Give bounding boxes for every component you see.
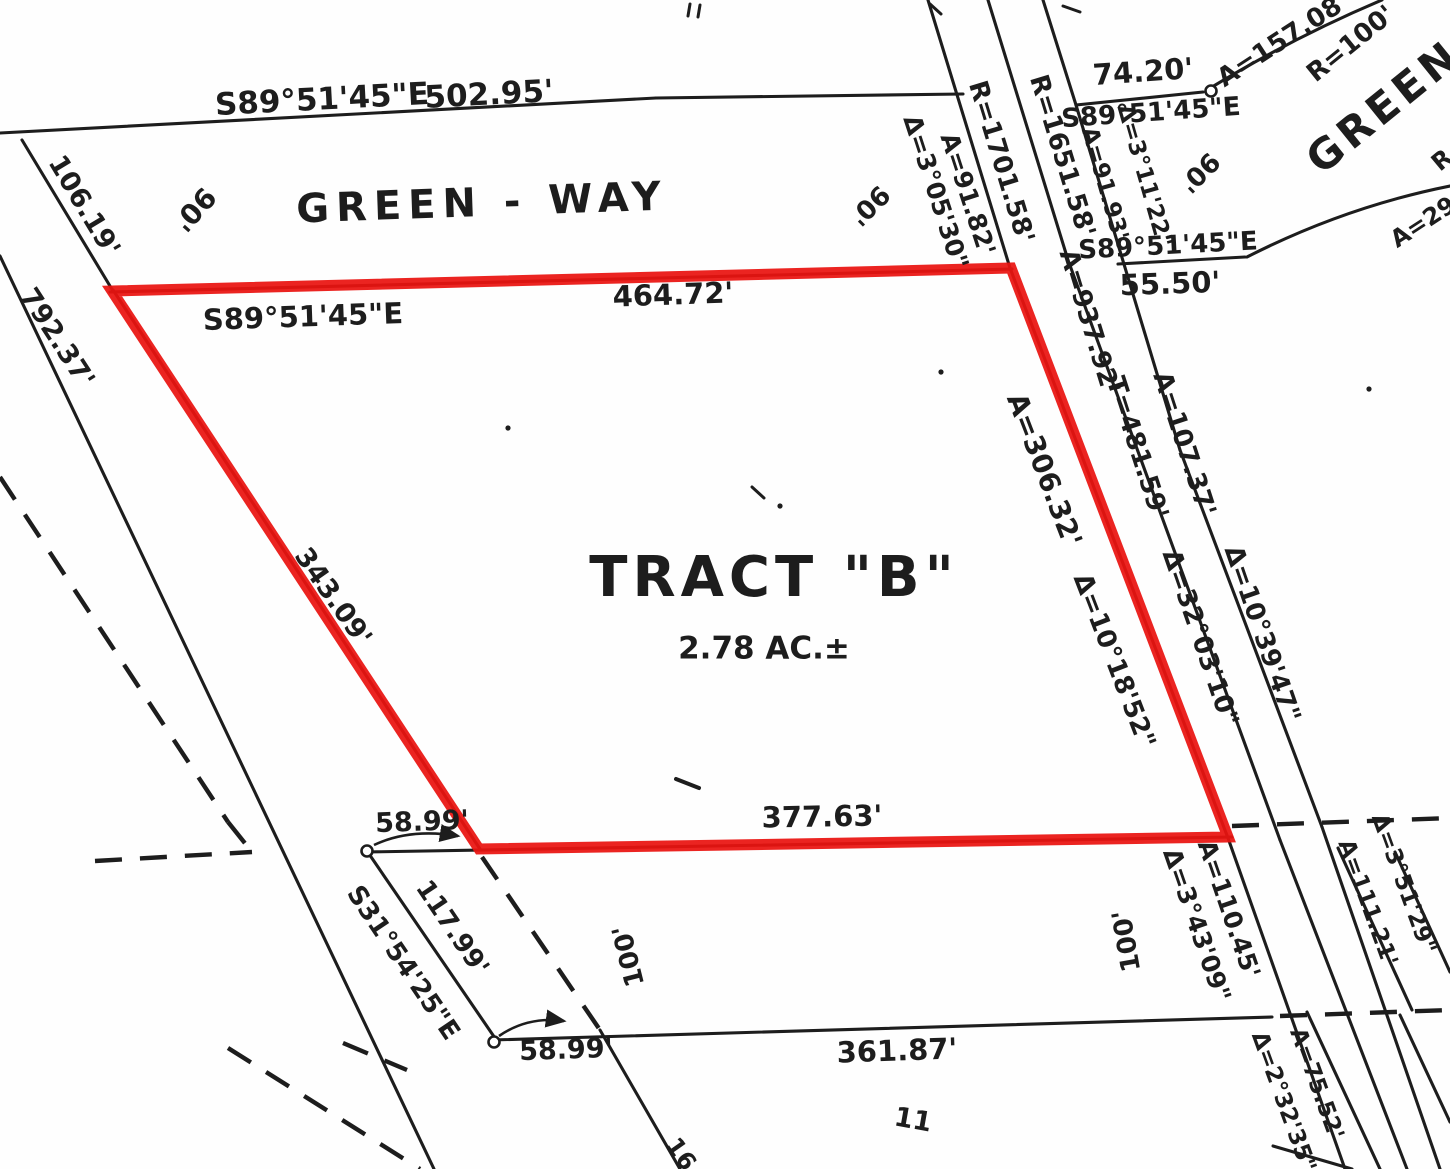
label-dist-5550: 55.50' <box>1119 268 1221 300</box>
label-dist-5899-a: 58.99' <box>375 807 470 837</box>
label-dist-361: 361.87' <box>836 1034 958 1067</box>
plat-map-scan: S89°51'45"E502.95'GREEN - WAY90'106.19'7… <box>0 0 1450 1169</box>
label-tract-area: 2.78 AC.± <box>678 634 850 665</box>
label-dist-7420: 74.20' <box>1092 54 1194 90</box>
label-dist-377: 377.63' <box>761 801 882 832</box>
label-dist-parcel-top: 464.72' <box>612 278 734 311</box>
label-tract-name: TRACT "B" <box>589 550 959 606</box>
label-dist-top: 502.95' <box>424 76 555 114</box>
label-bearing-parcel-top: S89°51'45"E <box>202 299 403 335</box>
label-dist-5899-b: 58.99' <box>519 1035 614 1065</box>
label-lot-11: 11 <box>892 1103 934 1136</box>
